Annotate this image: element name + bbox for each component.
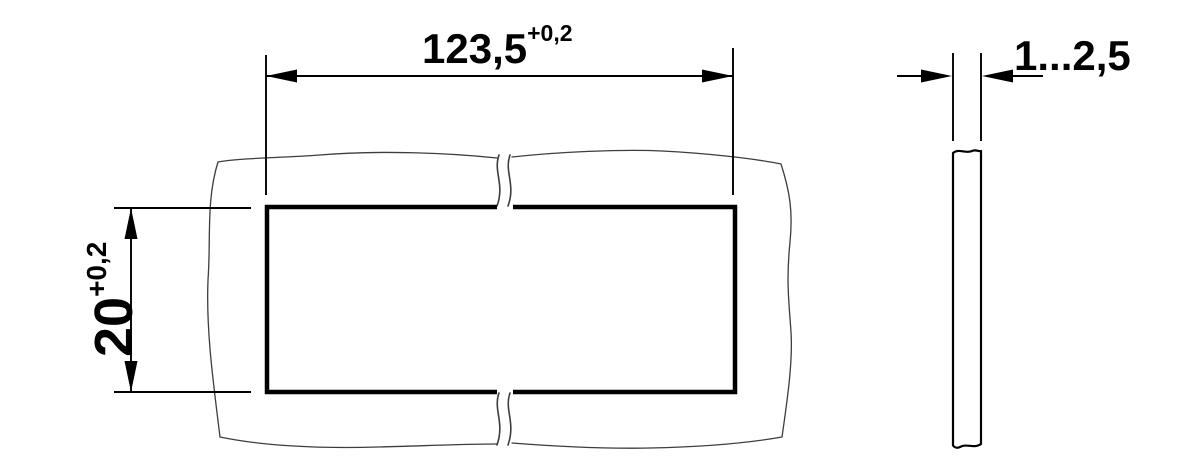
plate-outline — [953, 150, 981, 447]
width-dimension-tolerance: +0,2 — [527, 20, 572, 46]
height-arrowhead-top — [125, 208, 138, 239]
panel-cutout-dimension-drawing: 123,5+0,2 20+0,2 — [0, 0, 1200, 469]
cutout-edge-right — [513, 207, 735, 392]
technical-drawing-canvas: 123,5+0,2 20+0,2 — [0, 0, 1200, 469]
side-view: 1...2,5 — [897, 32, 1131, 448]
width-dimension: 123,5+0,2 — [266, 20, 733, 195]
height-dimension-label: 20+0,2 — [81, 242, 144, 357]
break-line-bottom-right — [508, 393, 511, 445]
panel-contour-left — [208, 152, 497, 447]
thickness-dimension-label: 1...2,5 — [1014, 32, 1131, 79]
thickness-dimension: 1...2,5 — [897, 32, 1131, 141]
height-dimension-value: 20 — [84, 297, 144, 357]
break-line-top-left — [497, 155, 500, 206]
break-line-bottom-left — [497, 393, 500, 445]
width-dimension-label: 123,5+0,2 — [422, 20, 573, 72]
thickness-arrowhead-left — [921, 70, 952, 83]
front-view: 123,5+0,2 20+0,2 — [81, 20, 791, 448]
break-line-top-right — [508, 155, 511, 206]
height-dimension: 20+0,2 — [81, 208, 251, 392]
panel-contour-right — [512, 150, 791, 448]
width-arrowhead-left — [266, 70, 297, 83]
height-arrowhead-bottom — [125, 361, 138, 392]
width-arrowhead-right — [702, 70, 733, 83]
cutout-edge-left — [267, 207, 497, 392]
thickness-arrowhead-right — [982, 70, 1013, 83]
width-dimension-value: 123,5 — [422, 25, 527, 72]
height-dimension-tolerance: +0,2 — [81, 242, 112, 297]
